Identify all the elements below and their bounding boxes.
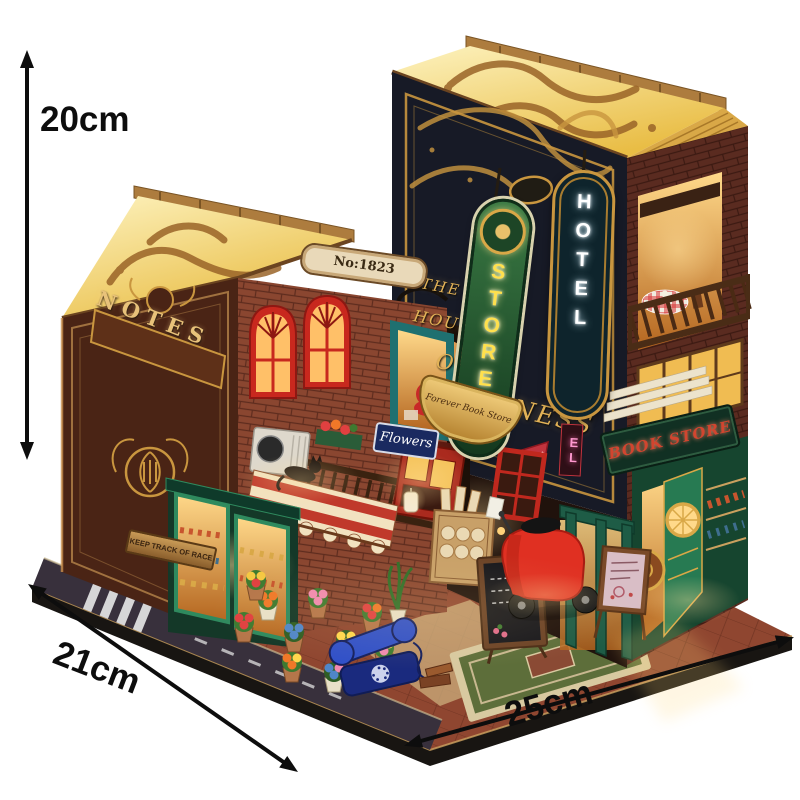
store-emblem-icon [477, 206, 528, 257]
hotel-neon-sign: HOTEL [545, 169, 617, 421]
store-neon-letters: STORE [471, 259, 511, 396]
red-arched-window [250, 306, 296, 398]
hotel-neon-letters: HOTEL [565, 191, 596, 418]
height-arrow [20, 50, 34, 460]
neon-fragment: EL [559, 423, 584, 476]
red-arched-window [304, 296, 350, 388]
product-photo: THE HOUSE OF HAPPINESS NOTES No:1823 STO… [0, 0, 800, 800]
height-dimension-label: 20cm [40, 100, 130, 140]
